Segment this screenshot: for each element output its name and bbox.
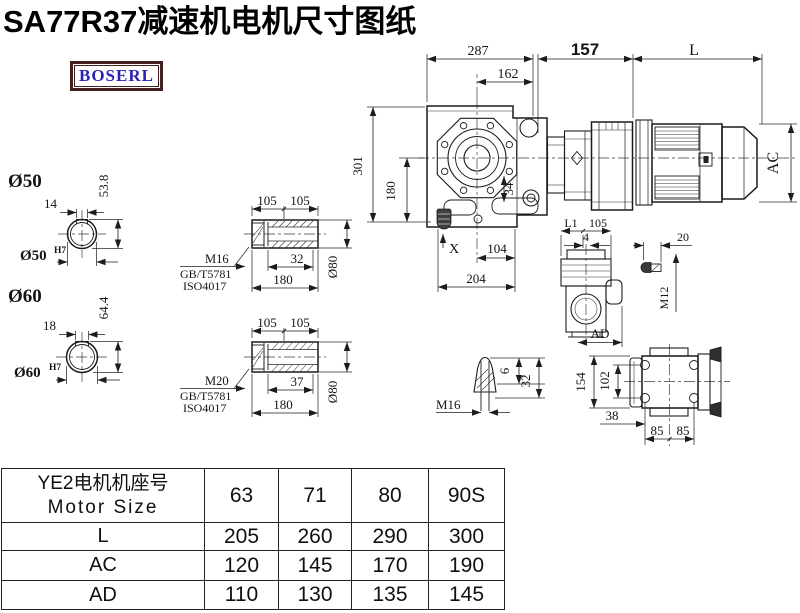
dim-keyway-height-50: 53.8: [96, 175, 111, 198]
dim-plug-6: 6: [497, 367, 512, 374]
dim-side-4: 4: [583, 230, 589, 244]
mounting-top-view: 154 102 38 85 85: [573, 344, 730, 446]
dim-180: 180: [383, 181, 398, 201]
label-hollow2-iso: ISO4017: [183, 401, 226, 415]
cell-AC-90S: 190: [429, 551, 505, 581]
label-bore-50: Ø50: [20, 248, 47, 264]
dim-plug-32: 32: [518, 375, 533, 388]
row-label-L: L: [2, 523, 205, 551]
motor-size-table: YE2电机机座号 Motor Size 63 71 80 90S L 205 2…: [1, 468, 505, 610]
cell-L-90S: 300: [429, 523, 505, 551]
dim-162: 162: [498, 67, 519, 82]
motor-flange: [636, 120, 652, 205]
label-d60: Ø60: [8, 286, 42, 307]
cell-AC-71: 145: [279, 551, 352, 581]
dim-keyway-height-60: 64.4: [96, 296, 111, 319]
row-label-AC: AC: [2, 551, 205, 581]
table-col-80: 80: [352, 469, 429, 523]
label-d50: Ø50: [8, 171, 42, 192]
dim-204: 204: [466, 271, 486, 286]
cell-AD-63: 110: [205, 581, 279, 610]
dim-hollow2-105b: 105: [290, 315, 310, 330]
table-row-AD: AD 110 130 135 145: [2, 581, 505, 610]
hollow-shaft-detail-1: 105 105 32 180 Ø80 M16 GB/T5781 ISO4017: [180, 193, 352, 293]
dim-top-102: 102: [597, 371, 612, 391]
cell-AD-80: 135: [352, 581, 429, 610]
main-assembly-view: 34: [350, 40, 797, 292]
dim-hollow2-37: 37: [291, 374, 305, 389]
plug-detail: M16 6 32: [436, 358, 545, 413]
table-col-71: 71: [279, 469, 352, 523]
dim-hollow2-105a: 105: [257, 315, 277, 330]
table-header-motor-size: YE2电机机座号 Motor Size: [2, 469, 205, 523]
dim-hollow1-od: Ø80: [325, 256, 340, 278]
cell-AC-80: 170: [352, 551, 429, 581]
cell-AD-90S: 145: [429, 581, 505, 610]
dim-301: 301: [350, 156, 365, 176]
mark-X: X: [449, 242, 459, 257]
label-plug-thread: M16: [436, 397, 461, 412]
boserl-logo-text: BOSERL: [74, 65, 159, 87]
shaft-section-d60: Ø60 18 64.4 Ø60 H7: [8, 286, 123, 384]
dim-hollow1-105b: 105: [290, 193, 310, 208]
dim-top-85a: 85: [651, 423, 664, 438]
table-header-row: YE2电机机座号 Motor Size 63 71 80 90S: [2, 469, 505, 523]
cell-AC-63: 120: [205, 551, 279, 581]
label-hollow1-bolt: M16: [205, 252, 229, 266]
dim-side-105: 105: [589, 216, 607, 230]
label-bore-60: Ø60: [14, 365, 41, 381]
cell-L-71: 260: [279, 523, 352, 551]
dim-hollow2-od: Ø80: [325, 381, 340, 403]
table-col-63: 63: [205, 469, 279, 523]
cell-AD-71: 130: [279, 581, 352, 610]
dim-top-38: 38: [606, 408, 619, 423]
dim-top-154: 154: [573, 372, 588, 392]
dim-keyway-width-50: 14: [44, 196, 58, 211]
boserl-logo: BOSERL: [70, 61, 163, 91]
dim-keyway-width-60: 18: [43, 318, 56, 333]
dim-bolt-20: 20: [677, 230, 689, 244]
table-row-AC: AC 120 145 170 190: [2, 551, 505, 581]
dim-157: 157: [571, 40, 599, 59]
dim-287: 287: [468, 44, 489, 59]
label-hollow1-iso: ISO4017: [183, 279, 226, 293]
dim-hollow1-105a: 105: [257, 193, 277, 208]
dim-hollow1-32: 32: [291, 251, 304, 266]
page-title: SA77R37减速机电机尺寸图纸: [3, 0, 416, 41]
header-en: Motor Size: [2, 496, 204, 520]
gearbox-side-view: L1 105 4 AD: [561, 216, 622, 347]
dim-side-AD: AD: [591, 326, 610, 341]
label-hollow2-bolt: M20: [205, 374, 229, 388]
row-label-AD: AD: [2, 581, 205, 610]
table-row-L: L 205 260 290 300: [2, 523, 505, 551]
shaft-section-d50: Ø50 14 53.8 Ø50 H7: [8, 171, 123, 266]
drawing-sheet: SA77R37减速机电机尺寸图纸 BOSERL Ø50 14 53.8: [0, 0, 800, 613]
label-bolt-thread: M12: [657, 287, 671, 310]
dim-34: 34: [501, 182, 516, 196]
dim-L: L: [689, 42, 699, 59]
hollow-shaft-detail-2: 105 105 37 180 Ø80 M20 GB/T5781 ISO4017: [180, 315, 352, 417]
header-cn: YE2电机机座号: [2, 472, 204, 496]
dim-side-L1: L1: [564, 216, 577, 230]
cell-L-63: 205: [205, 523, 279, 551]
table-col-90S: 90S: [429, 469, 505, 523]
dim-AC: AC: [765, 152, 782, 174]
dim-hollow2-180: 180: [273, 397, 293, 412]
dim-104: 104: [487, 241, 507, 256]
motor-end-cap: [722, 127, 757, 199]
dim-top-85b: 85: [677, 423, 690, 438]
label-bore-50-tol: H7: [54, 246, 66, 256]
label-bore-60-tol: H7: [49, 363, 61, 373]
dim-hollow1-180: 180: [273, 272, 293, 287]
cell-L-80: 290: [352, 523, 429, 551]
bolt-detail: 20 M12: [633, 230, 692, 312]
